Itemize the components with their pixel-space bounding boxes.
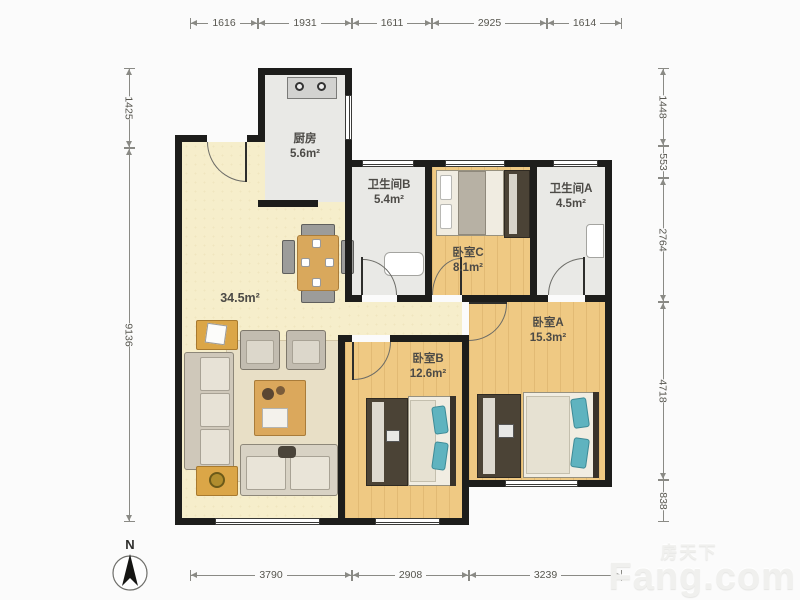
plate	[312, 278, 321, 287]
dimension-value: 1448	[655, 95, 671, 118]
sofa-cushion	[200, 429, 230, 465]
dimension-value: 553	[655, 153, 671, 171]
dimension-value: 9136	[121, 323, 137, 346]
dimension-right-3: 2764	[656, 178, 670, 302]
stove-burner-icon	[317, 82, 326, 91]
wall	[258, 200, 318, 207]
dimension-right-2: 553	[656, 146, 670, 178]
dimension-value: 4718	[655, 379, 671, 402]
room-area: 4.5m²	[556, 198, 586, 210]
decor-bowl	[262, 388, 274, 400]
dimension-top-5: 1614	[547, 16, 622, 30]
stove-burner-icon	[295, 82, 304, 91]
room-name: 卫生间A	[550, 183, 593, 195]
hallway-floor	[345, 302, 462, 335]
bathroom-a-label: 卫生间A 4.5m²	[532, 182, 610, 212]
dimension-value: 1611	[377, 17, 408, 29]
tv	[386, 430, 400, 442]
bedroom-b-label: 卧室B 12.6m²	[383, 352, 473, 382]
fang-watermark: 房天下 Fang.com	[609, 545, 796, 594]
kitchen-label: 厨房 5.6m²	[270, 132, 340, 162]
dimension-left-1: 1425	[122, 68, 136, 148]
headboard	[593, 392, 599, 478]
room-area: 5.6m²	[290, 148, 320, 160]
window	[553, 160, 598, 167]
wall	[585, 295, 612, 302]
window	[505, 480, 578, 487]
pillow	[440, 175, 452, 200]
bathroom-a-door	[583, 257, 585, 295]
wardrobe	[504, 170, 530, 238]
window	[445, 160, 505, 167]
room-name: 厨房	[294, 133, 317, 145]
room-area: 5.4m²	[374, 194, 404, 206]
sofa-cushion	[200, 393, 230, 427]
dimension-value: 1931	[289, 17, 320, 29]
room-name: 卧室A	[532, 317, 563, 329]
bathroom-b-label: 卫生间B 5.4m²	[349, 178, 429, 208]
living-room-label: 34.5m²	[200, 290, 280, 306]
dining-chair	[282, 240, 295, 274]
dimension-top-4: 2925	[432, 16, 547, 30]
bathroom-b-door	[361, 257, 363, 295]
dimension-left-2: 9136	[122, 148, 136, 522]
decor-bowl	[276, 386, 285, 395]
plate	[325, 258, 334, 267]
armchair-cushion	[292, 340, 320, 364]
dimension-bottom-3: 3239	[469, 568, 622, 582]
throw-pillow	[278, 446, 296, 458]
loveseat-cushion	[290, 456, 330, 490]
room-area: 15.3m²	[530, 332, 566, 344]
wardrobe-panel	[483, 398, 495, 474]
plate	[301, 258, 310, 267]
wall	[175, 135, 182, 525]
bedroom-b-door	[352, 342, 354, 380]
entry-door	[245, 142, 247, 182]
wall	[462, 295, 537, 302]
dimension-right-5: 838	[656, 480, 670, 522]
room-area: 12.6m²	[410, 368, 446, 380]
pillow	[440, 204, 452, 229]
floor-plan: 厨房 5.6m² 卫生间B 5.4m² 卫生间A 4.5m² 卧室C 8.1m²…	[0, 0, 800, 600]
dimension-right-4: 4718	[656, 302, 670, 480]
dimension-value: 3239	[530, 569, 561, 581]
dimension-value: 1616	[208, 17, 239, 29]
blanket	[458, 171, 486, 235]
bedroom-a-label: 卧室A 15.3m²	[503, 316, 593, 346]
room-name: 卧室C	[452, 247, 483, 259]
dimension-value: 1425	[121, 96, 137, 119]
window	[362, 160, 414, 167]
window	[345, 95, 352, 140]
room-name: 卫生间B	[368, 179, 411, 191]
dimension-top-3: 1611	[352, 16, 432, 30]
loveseat-cushion	[246, 456, 286, 490]
table-lamp	[205, 323, 228, 346]
bedroom-c-label: 卧室C 8.1m²	[428, 246, 508, 276]
dimension-value: 2925	[474, 17, 505, 29]
headboard	[450, 396, 456, 486]
wall	[390, 335, 469, 342]
armchair-cushion	[246, 340, 274, 364]
dimension-value: 2908	[395, 569, 426, 581]
window	[375, 518, 440, 525]
blanket	[526, 396, 570, 474]
dimension-value: 2764	[655, 228, 671, 251]
tray	[262, 408, 288, 428]
north-arrow-icon	[110, 551, 150, 593]
washbasin	[586, 224, 604, 258]
dimension-bottom-2: 2908	[352, 568, 469, 582]
bedroom-a-door	[469, 302, 507, 304]
wall	[345, 295, 362, 302]
north-compass: N	[108, 538, 152, 598]
wall	[537, 295, 548, 302]
window	[215, 518, 320, 525]
plate	[312, 239, 321, 248]
dimension-value: 838	[655, 492, 671, 510]
plant	[209, 472, 225, 488]
dimension-top-1: 1616	[190, 16, 258, 30]
dimension-value: 1614	[569, 17, 600, 29]
room-area: 34.5m²	[220, 291, 260, 305]
dimension-value: 3790	[255, 569, 286, 581]
dimension-right-1: 1448	[656, 68, 670, 146]
sofa-cushion	[200, 357, 230, 391]
room-name: 卧室B	[412, 353, 443, 365]
wall	[258, 68, 352, 75]
wall	[397, 295, 425, 302]
wall	[338, 335, 345, 525]
room-area: 8.1m²	[453, 262, 483, 274]
fang-watermark-brand: Fang.com	[609, 560, 796, 594]
wardrobe-panel	[509, 174, 517, 234]
dining-chair	[301, 290, 335, 303]
wardrobe-panel	[372, 402, 384, 482]
tv	[498, 424, 514, 438]
wall	[258, 68, 265, 142]
dimension-bottom-1: 3790	[190, 568, 352, 582]
north-label: N	[108, 538, 152, 551]
dimension-top-2: 1931	[258, 16, 352, 30]
